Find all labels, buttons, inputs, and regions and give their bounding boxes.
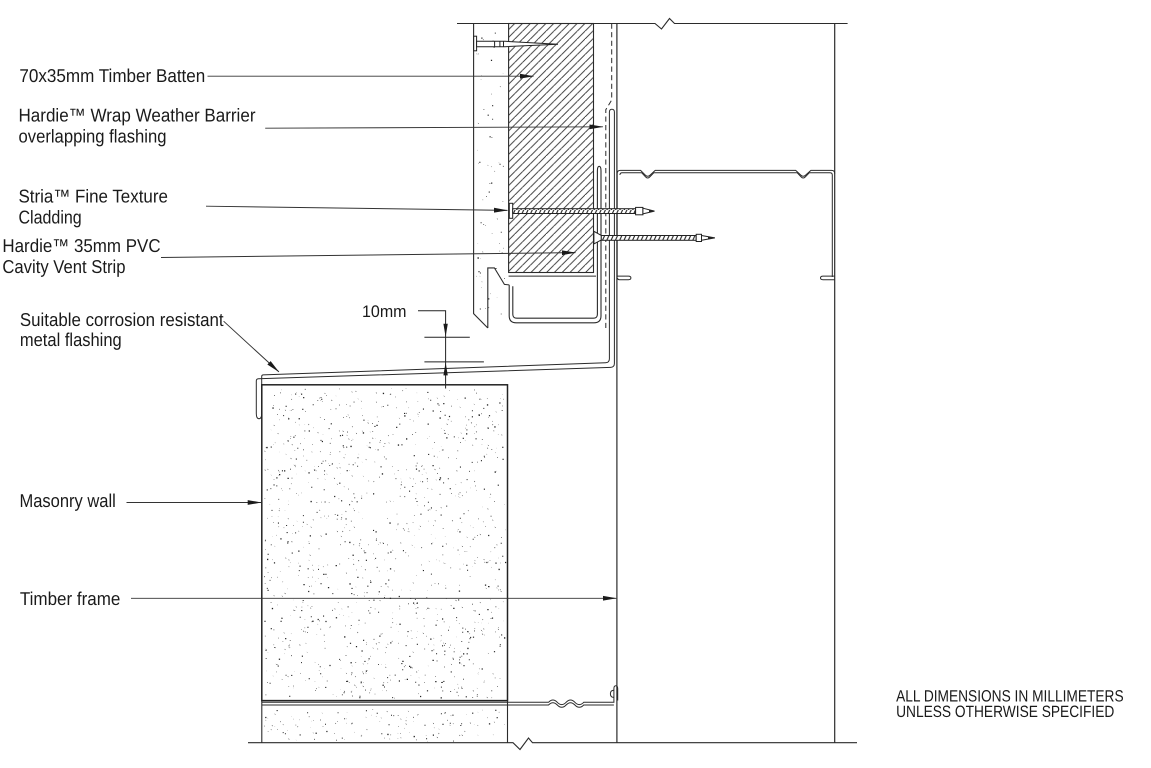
svg-text:UNLESS OTHERWISE SPECIFIED: UNLESS OTHERWISE SPECIFIED [896,703,1114,721]
svg-text:overlapping flashing: overlapping flashing [19,125,167,146]
svg-text:Hardie™ 35mm PVC: Hardie™ 35mm PVC [2,235,160,256]
svg-text:Masonry wall: Masonry wall [20,490,116,511]
svg-text:Stria™ Fine Texture: Stria™ Fine Texture [19,186,168,207]
svg-text:Cladding: Cladding [19,207,82,228]
svg-text:Suitable corrosion resistant: Suitable corrosion resistant [20,309,224,330]
svg-text:Cavity Vent Strip: Cavity Vent Strip [2,256,125,277]
svg-text:metal flashing: metal flashing [20,329,122,350]
svg-text:Hardie™ Wrap Weather Barrier: Hardie™ Wrap Weather Barrier [19,104,256,125]
svg-text:10mm: 10mm [362,302,407,321]
svg-text:Timber frame: Timber frame [20,588,121,609]
svg-text:70x35mm Timber Batten: 70x35mm Timber Batten [19,65,205,86]
